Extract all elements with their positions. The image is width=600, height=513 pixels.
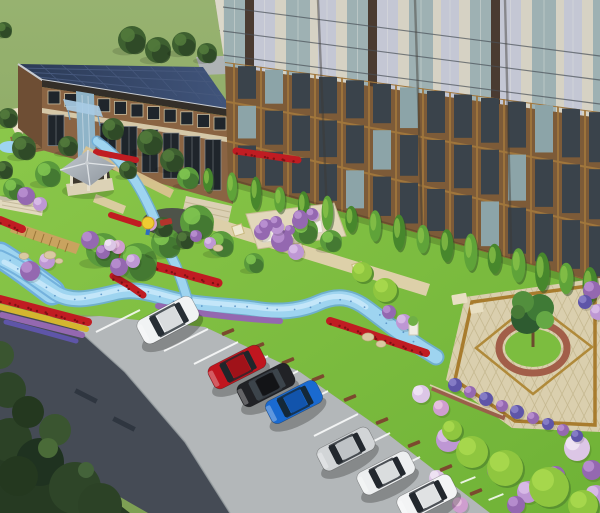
slim-tree-highlight [204, 170, 209, 183]
stream-ripple [350, 300, 352, 302]
planter-plant [408, 316, 418, 326]
clubhouse-upper-window [148, 107, 160, 120]
tree-highlight [140, 131, 153, 144]
boulder [19, 253, 29, 260]
tower-window [427, 140, 445, 182]
stream-ripple [339, 299, 341, 301]
flower-speckle [74, 319, 76, 321]
aerial-landscape-render [0, 0, 600, 513]
tower-window [292, 158, 310, 193]
flower-speckle [76, 320, 78, 322]
flower-speckle [55, 314, 57, 316]
clubhouse-upper-window [197, 114, 209, 127]
tower-window [373, 84, 391, 123]
flower-speckle [404, 347, 406, 349]
stream-ripple [46, 287, 48, 289]
tower-window [265, 111, 283, 145]
yellow-umbrella [142, 217, 154, 229]
flower-speckle [251, 154, 253, 156]
bush-highlight [105, 239, 112, 246]
green-bush-highlight [375, 279, 388, 292]
tower-window [319, 120, 337, 157]
stream-ripple [84, 297, 86, 299]
tower-window [373, 130, 391, 169]
tower-window [481, 201, 499, 246]
tree-highlight [183, 208, 200, 225]
tower-window [454, 145, 472, 188]
tree-highlight [104, 120, 115, 131]
slim-tree-highlight [442, 232, 449, 250]
facade-strip [593, 0, 600, 130]
stream-ripple [17, 268, 19, 270]
flower-speckle [402, 346, 404, 348]
green-bush-highlight [444, 421, 455, 432]
slim-tree-highlight [394, 218, 400, 238]
bush-highlight [480, 392, 488, 400]
tower-window [346, 125, 364, 163]
tower-window [373, 177, 391, 216]
slim-tree-highlight [299, 194, 305, 211]
clubhouse-upper-window [131, 104, 143, 117]
bush-highlight [413, 386, 423, 396]
tower-window [589, 112, 600, 162]
tree-highlight [121, 162, 130, 171]
stream-ripple [74, 298, 76, 300]
clubhouse-upper-window [181, 112, 193, 125]
green-bush-highlight [354, 263, 365, 274]
boulder [362, 333, 374, 341]
bush-highlight [511, 405, 519, 413]
stream-ripple [201, 305, 203, 307]
tree-highlight [199, 45, 209, 55]
bush-highlight [449, 378, 457, 386]
boulder [44, 251, 56, 259]
flower-speckle [30, 308, 32, 310]
stream-ripple [294, 309, 296, 311]
tower-window [481, 98, 499, 143]
tower-window [454, 94, 472, 137]
bush-highlight [508, 497, 518, 507]
planter-flowers-highlight [260, 220, 268, 228]
tower-window [427, 91, 445, 133]
slim-tree-highlight [537, 256, 544, 277]
flower-speckle [171, 271, 173, 273]
flower-speckle [392, 344, 394, 346]
bush-highlight [21, 262, 32, 273]
tree-highlight [246, 255, 256, 265]
stream-ripple [54, 295, 56, 297]
flower-speckle [36, 310, 38, 312]
tower-window [562, 109, 580, 158]
flower-speckle [202, 280, 204, 282]
bush-highlight [528, 412, 535, 419]
flower-speckle [126, 285, 128, 287]
flower-speckle [357, 330, 359, 332]
stream-ripple [220, 305, 222, 307]
tower-window [346, 170, 364, 208]
flower-speckle [344, 327, 346, 329]
bush-highlight [82, 232, 92, 242]
bush-highlight [558, 424, 565, 431]
slim-tree-highlight [418, 228, 424, 244]
tower-window [589, 169, 600, 219]
tree-highlight [121, 28, 135, 42]
flower-speckle [411, 349, 413, 351]
tower-window [427, 189, 445, 231]
flower-speckle [389, 342, 391, 344]
bush-highlight [34, 197, 42, 205]
tree-highlight [60, 138, 70, 148]
bush-highlight [583, 461, 594, 472]
stream-ripple [234, 305, 236, 307]
stream-ripple [319, 302, 321, 304]
tree-highlight [322, 232, 333, 243]
clubhouse-upper-window [214, 117, 226, 130]
render-canvas [0, 0, 600, 513]
boulder [55, 258, 63, 263]
slim-tree-highlight [370, 213, 376, 230]
bush-highlight [18, 188, 28, 198]
boulder [213, 245, 223, 252]
tree-highlight [148, 39, 161, 52]
tower-window [292, 116, 310, 151]
slim-tree-highlight [560, 266, 567, 283]
bush-highlight [572, 430, 579, 437]
flower-speckle [14, 227, 16, 229]
walkway-inset [232, 224, 244, 236]
flower-speckle [46, 313, 48, 315]
flower-speckle [273, 158, 275, 160]
flower-speckle [174, 273, 176, 275]
planter-flowers-highlight [294, 211, 302, 219]
slim-tree-highlight [513, 252, 520, 271]
tower-window [400, 183, 418, 224]
tower-window [319, 164, 337, 201]
flower-speckle [184, 274, 186, 276]
tower-window [346, 80, 364, 118]
tower-window [535, 159, 553, 206]
green-bush-highlight [490, 452, 510, 472]
stream-ripple [100, 293, 102, 295]
tower-window [481, 150, 499, 195]
bush-highlight [205, 237, 212, 244]
planter-flowers-highlight [307, 209, 314, 216]
tree-highlight [174, 34, 186, 46]
bush-highlight [397, 315, 406, 324]
tree-highlight [5, 180, 16, 191]
tower-window [562, 220, 580, 269]
flower-speckle [217, 283, 219, 285]
stream-ripple [9, 259, 11, 261]
bush-highlight [518, 482, 530, 494]
tower-window [400, 87, 418, 128]
bush-highlight [434, 401, 443, 410]
green-bush-highlight [570, 492, 587, 509]
tower-window [508, 102, 526, 148]
flower-speckle [139, 295, 141, 297]
flower-speckle [8, 224, 10, 226]
stream-ripple [147, 291, 149, 293]
clubhouse-upper-window [114, 101, 126, 114]
flower-speckle [17, 305, 19, 307]
tower-window [238, 66, 256, 99]
flower-speckle [253, 155, 255, 157]
slim-tree-highlight [228, 175, 233, 191]
slim-tree-highlight [252, 180, 257, 198]
planter-flowers-highlight [271, 217, 278, 224]
green-bush-highlight [532, 469, 554, 491]
bush-highlight [97, 245, 105, 253]
flower-speckle [347, 328, 349, 330]
slim-tree-highlight [489, 247, 496, 264]
flower-speckle [236, 152, 238, 154]
flower-speckle [128, 288, 130, 290]
clubhouse-upper-window [164, 109, 176, 122]
flower-speckle [266, 157, 268, 159]
flower-speckle [329, 323, 331, 325]
tree-highlight [179, 169, 190, 180]
bush-highlight [497, 400, 504, 407]
bush-highlight [127, 254, 135, 262]
tree-highlight [14, 138, 26, 150]
flower-speckle [245, 153, 247, 155]
pedestal-planter [408, 316, 418, 335]
flower-speckle [16, 229, 18, 231]
stream-ripple [379, 314, 381, 316]
flower-speckle [63, 317, 65, 319]
planter-flowers-highlight [285, 225, 291, 231]
flower-speckle [420, 353, 422, 355]
clubhouse-upper-window [48, 91, 60, 104]
flower-speckle [186, 276, 188, 278]
tree-highlight [38, 163, 51, 176]
flower-speckle [283, 159, 285, 161]
stream-ripple [159, 296, 161, 298]
stream-ripple [117, 290, 119, 292]
tower-window [400, 135, 418, 176]
slim-tree-highlight [347, 209, 353, 224]
stream-ripple [413, 341, 415, 343]
stream-ripple [246, 306, 248, 308]
flower-speckle [60, 316, 62, 318]
flower-speckle [82, 322, 84, 324]
flower-speckle [264, 156, 266, 158]
tower-window [292, 73, 310, 108]
stream-ripple [385, 322, 387, 324]
tree-highlight [178, 232, 187, 241]
bush-highlight [191, 230, 198, 237]
stream-ripple [364, 306, 366, 308]
bush-highlight [543, 418, 550, 425]
stream-ripple [266, 307, 268, 309]
flower-speckle [359, 332, 361, 334]
flower-speckle [292, 160, 294, 162]
tower-window [454, 195, 472, 238]
gazebo-finial [85, 161, 89, 165]
boulder [376, 341, 386, 348]
tower-window [562, 164, 580, 213]
tower-window [238, 106, 256, 139]
flower-speckle [165, 270, 167, 272]
tree-highlight [0, 110, 10, 120]
flower-speckle [8, 302, 10, 304]
tower-window [535, 105, 553, 152]
flower-speckle [27, 307, 29, 309]
flower-speckle [14, 304, 16, 306]
tower-window [265, 70, 283, 104]
flower-speckle [193, 277, 195, 279]
flower-speckle [338, 325, 340, 327]
bush-highlight [579, 295, 587, 303]
flower-speckle [375, 338, 377, 340]
bush-highlight [584, 282, 594, 292]
bush-highlight [465, 386, 472, 393]
stream-ripple [310, 306, 312, 308]
bush-highlight [383, 305, 391, 313]
green-bush-highlight [458, 438, 476, 456]
flower-speckle [137, 291, 139, 293]
bush-highlight [289, 245, 298, 254]
slim-tree-highlight [275, 189, 280, 203]
bush-highlight [111, 259, 121, 269]
slim-tree-highlight [465, 237, 472, 258]
flower-speckle [212, 282, 214, 284]
slim-tree-highlight [323, 199, 329, 218]
stream-ripple [276, 309, 278, 311]
tree-highlight [162, 150, 174, 162]
